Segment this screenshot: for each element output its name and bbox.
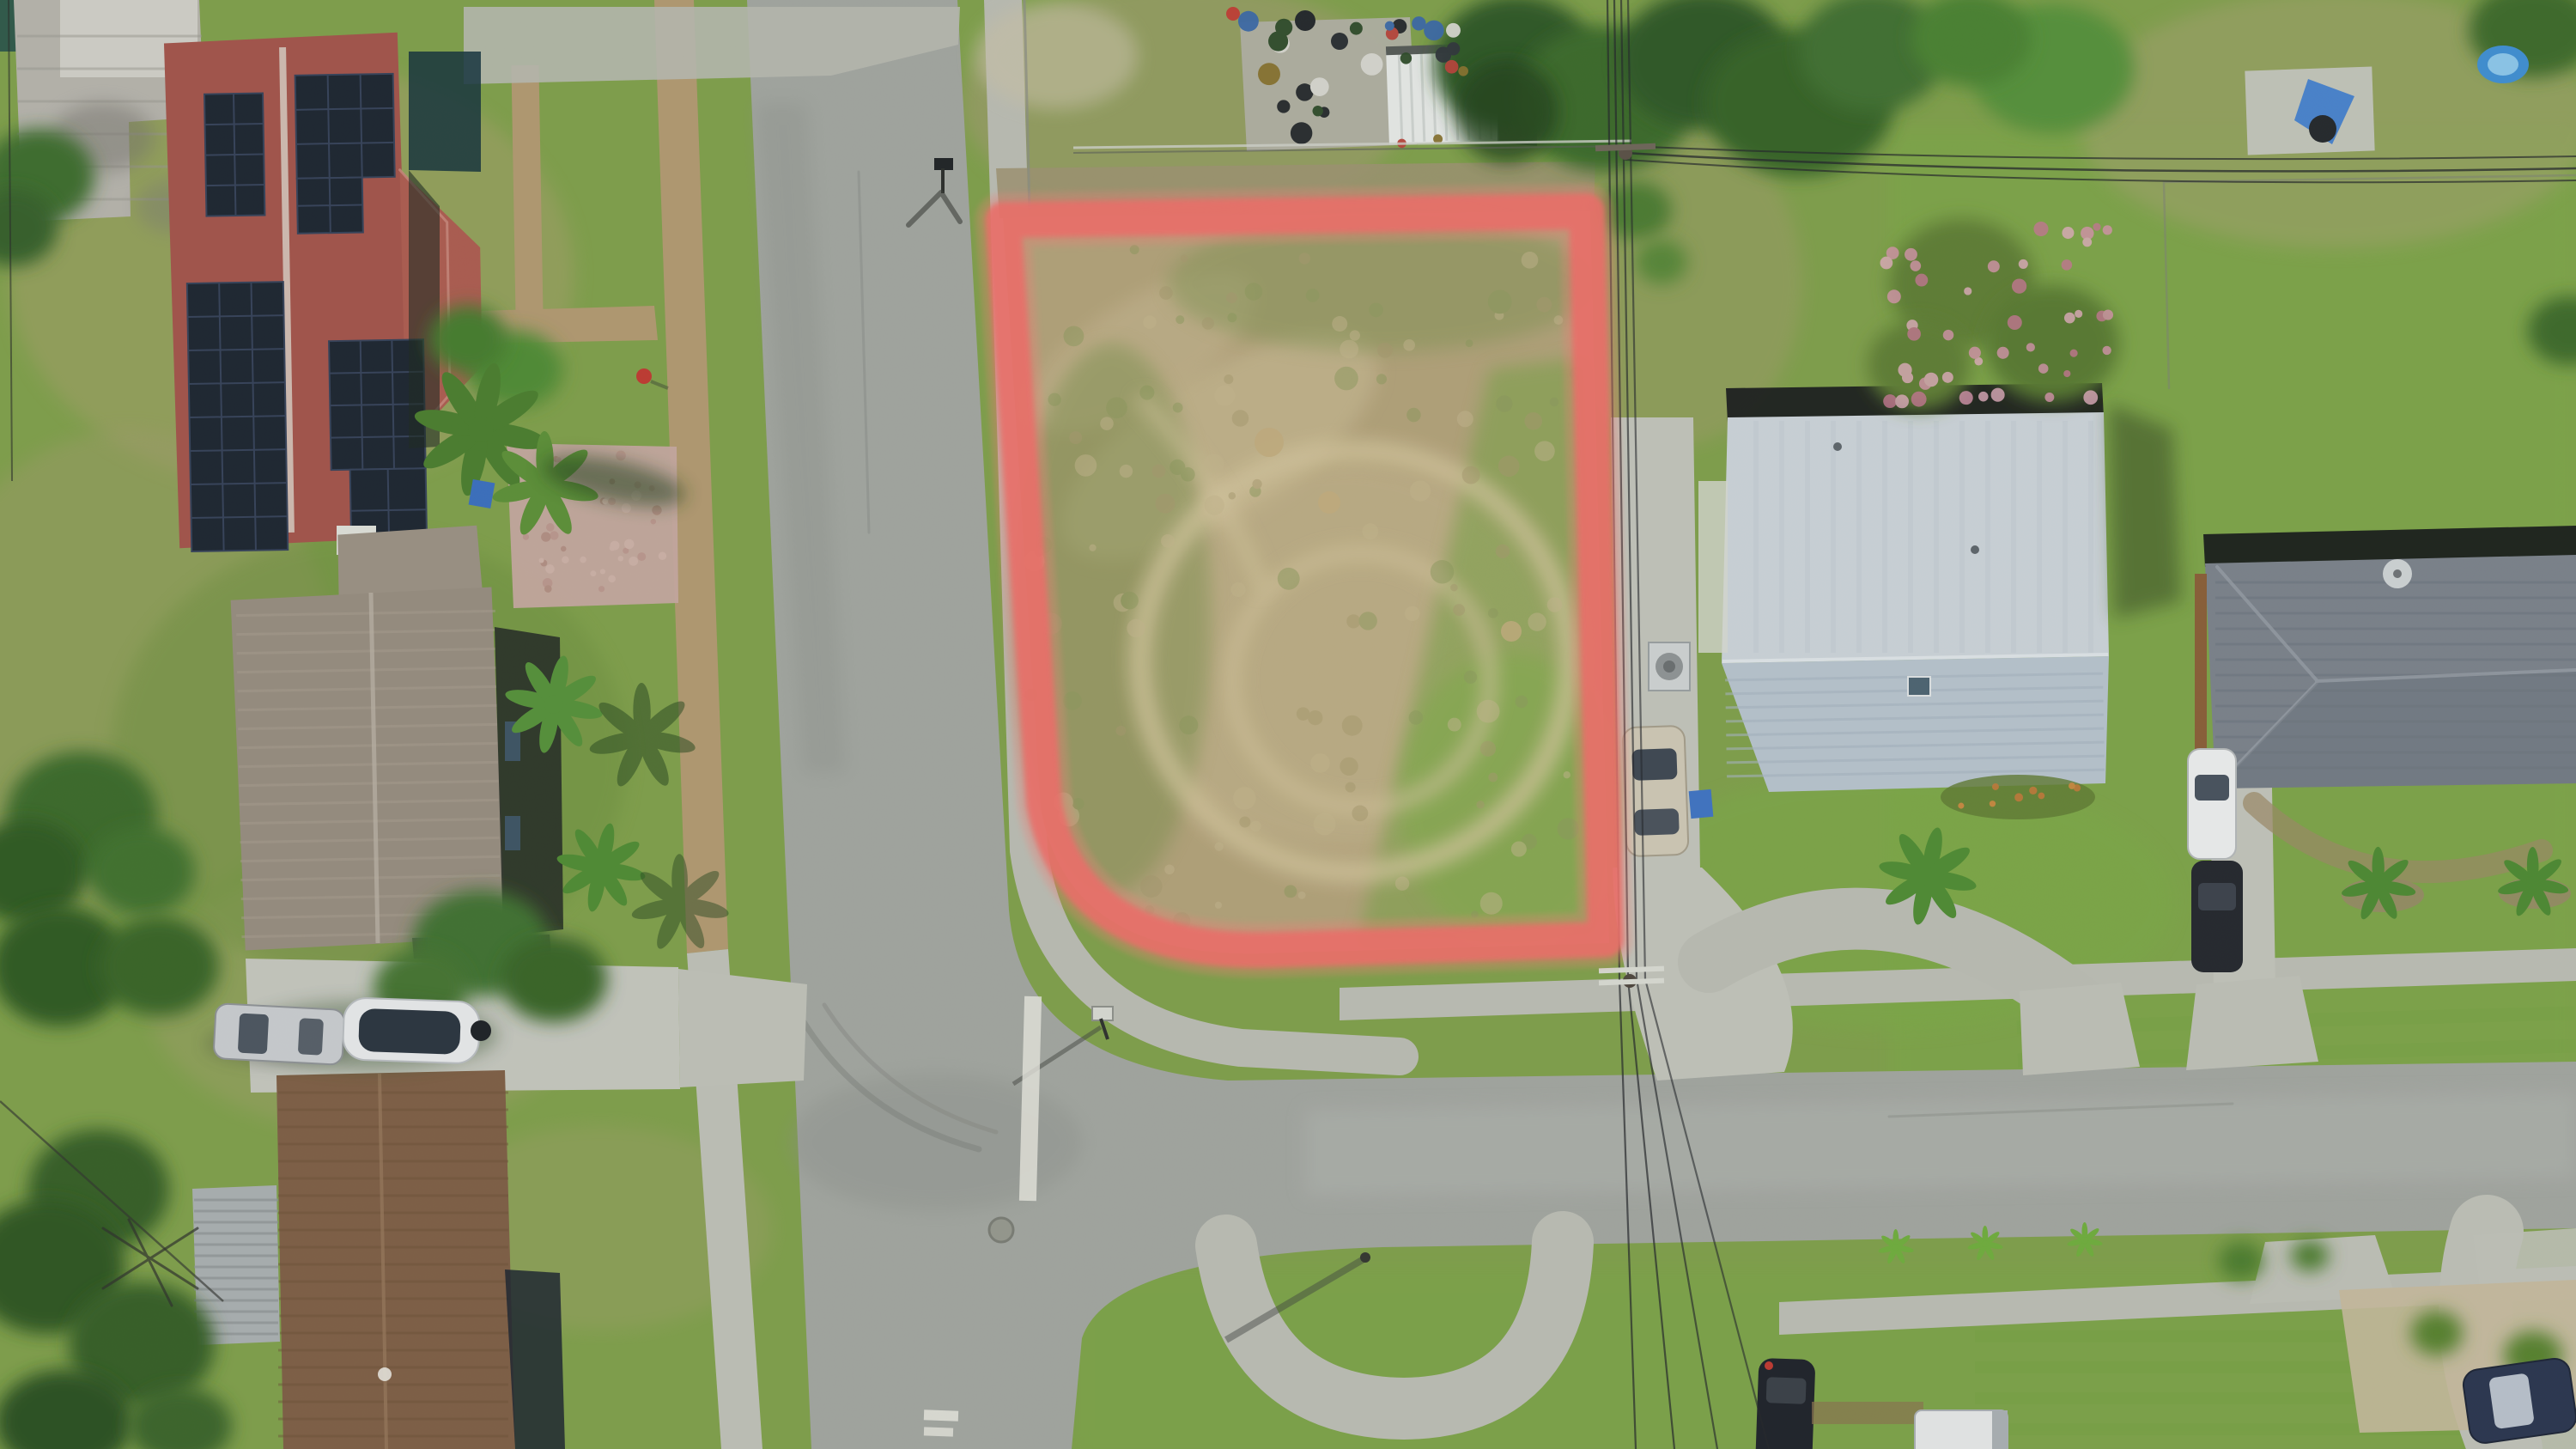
film-grain-overlay bbox=[0, 0, 2576, 1449]
aerial-photo-canvas bbox=[0, 0, 2576, 1449]
aerial-photo bbox=[0, 0, 2576, 1449]
